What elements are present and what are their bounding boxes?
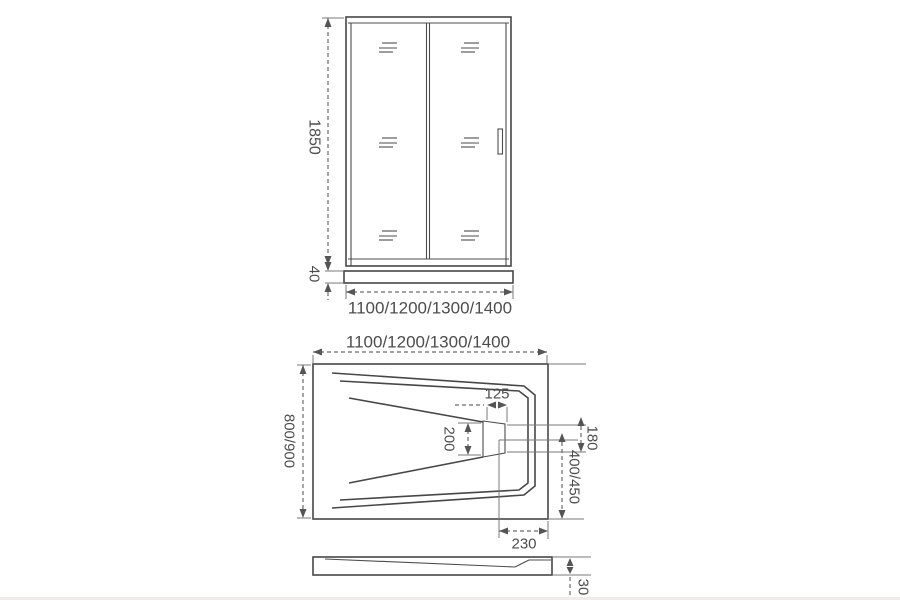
glass-mark [379, 231, 397, 240]
tray-slope-line [349, 398, 483, 422]
dim-drain-edge-offset: 180 [578, 417, 601, 452]
dim-door-height: 1850 [306, 18, 345, 265]
dim-drain-slot-height-label: 200 [441, 426, 458, 451]
profile-view: 30 [313, 557, 592, 598]
tray-profile-drain-kick [515, 560, 529, 567]
tray-profile-slope [325, 559, 515, 567]
front-view: 1850 40 1100/1200/1300/1400 [306, 17, 514, 318]
drawing-canvas: 1850 40 1100/1200/1300/1400 [0, 0, 900, 600]
glass-mark [379, 43, 397, 52]
dim-base-height-label: 40 [306, 266, 323, 283]
tray-base-front [344, 271, 513, 283]
dim-drain-slot-height: 200 [441, 423, 482, 455]
dim-base-height: 40 [306, 262, 344, 300]
door-handle [498, 129, 503, 154]
tray-slope-line [349, 457, 483, 483]
dim-tray-width: 1100/1200/1300/1400 [313, 333, 547, 364]
dim-door-height-label: 1850 [306, 119, 323, 155]
plan-view: 1100/1200/1300/1400 800/900 125 [281, 333, 601, 553]
dim-tray-depth: 800/900 [281, 365, 312, 518]
dim-door-width: 1100/1200/1300/1400 [346, 285, 513, 318]
technical-drawing: 1850 40 1100/1200/1300/1400 [0, 0, 900, 600]
door-frame [346, 17, 511, 266]
drain-slot [483, 421, 505, 457]
dim-drain-edge-offset-label: 180 [584, 425, 601, 450]
dim-tray-height: 30 [553, 557, 592, 598]
glass-mark [461, 231, 479, 240]
glass-mark [379, 138, 397, 147]
glass-mark [461, 138, 479, 147]
dim-tray-height-label: 30 [575, 579, 592, 596]
dim-drain-back-offset-label: 400/450 [566, 450, 583, 504]
glass-mark [461, 43, 479, 52]
dim-drain-slot-width-label: 125 [484, 386, 509, 403]
dim-tray-depth-label: 800/900 [281, 414, 298, 468]
dim-drain-side-offset: 230 [499, 521, 548, 553]
dim-drain-side-offset-label: 230 [511, 536, 536, 553]
dim-tray-width-label: 1100/1200/1300/1400 [346, 333, 510, 352]
dim-door-width-label: 1100/1200/1300/1400 [348, 299, 512, 318]
dim-drain-slot-width: 125 [455, 386, 510, 423]
